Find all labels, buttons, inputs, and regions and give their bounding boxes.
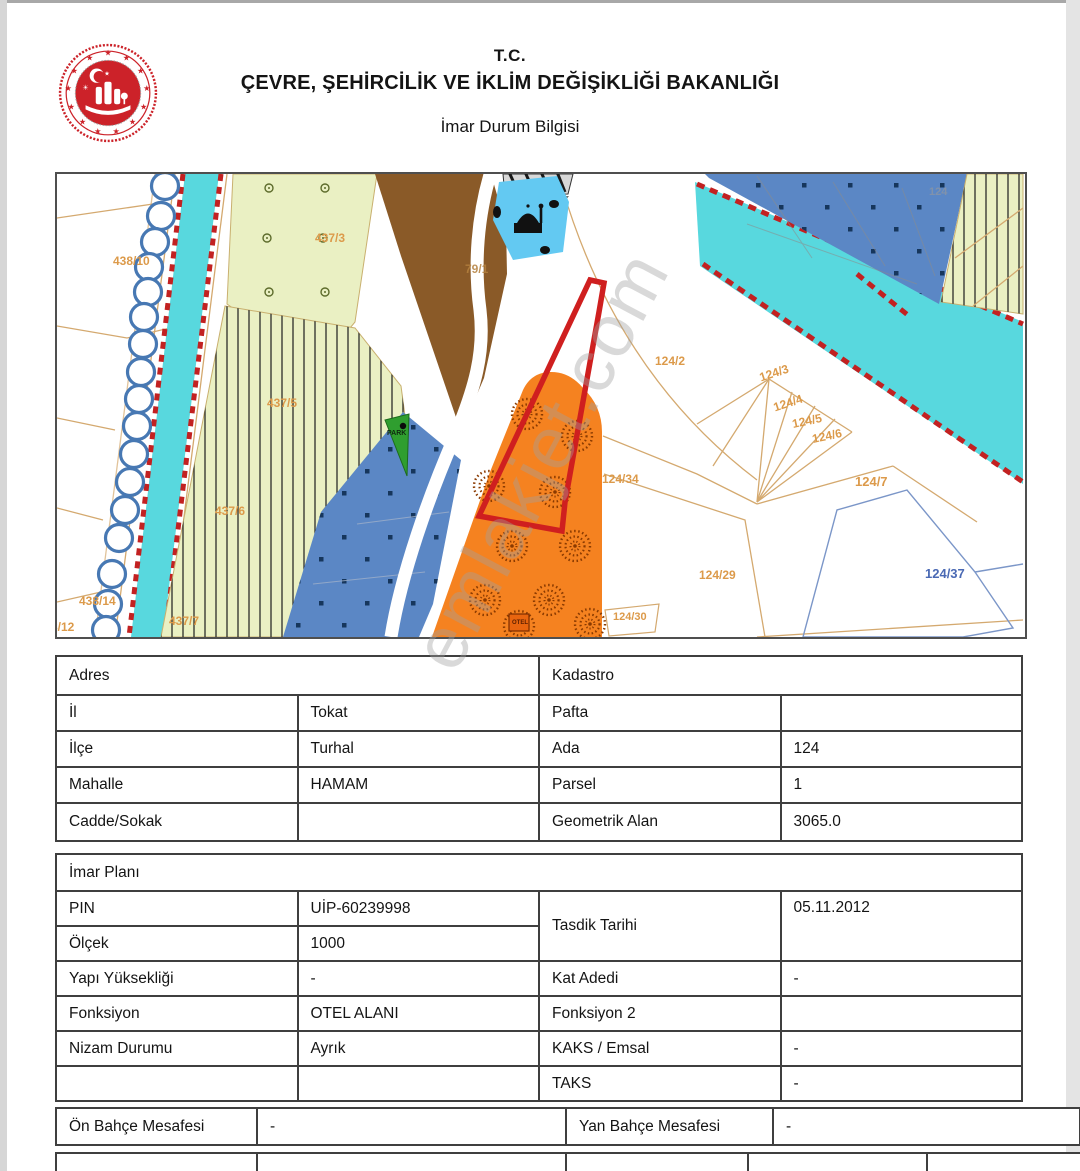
page-edge-right [1066,0,1080,1171]
olcek-value: 1000 [298,926,540,961]
empty-cell [566,1153,748,1171]
address-kadastro-table: Adres Kadastro İl Tokat Pafta İlçe Turha… [55,655,1023,842]
header-titles: T.C. ÇEVRE, ŞEHİRCİLİK VE İKLİM DEĞİŞİKL… [5,46,1015,137]
il-label: İl [56,695,298,731]
fonksiyon2-label: Fonksiyon 2 [539,996,781,1031]
taks-value: - [781,1066,1023,1101]
setback-table: Ön Bahçe Mesafesi - Yan Bahçe Mesafesi - [55,1107,1080,1146]
olcek-label: Ölçek [56,926,298,961]
table-row [56,1153,1080,1171]
yapi-yuksekligi-label: Yapı Yüksekliği [56,961,298,996]
fonksiyon-value: OTEL ALANI [298,996,540,1031]
empty-cell [298,1066,540,1101]
mahalle-label: Mahalle [56,767,298,803]
zoning-map: 438/10 437/3 79/1 437/5 437/6 437/7 438/… [55,172,1027,639]
adres-header: Adres [56,656,539,695]
table-row: PIN UİP-60239998 Tasdik Tarihi 05.11.201… [56,891,1022,926]
page-edge-top [0,0,1080,3]
geometrik-alan-label: Geometrik Alan [539,803,781,841]
pafta-label: Pafta [539,695,781,731]
table-row: İl Tokat Pafta [56,695,1022,731]
table-row: Yapı Yüksekliği - Kat Adedi - [56,961,1022,996]
taks-label: TAKS [539,1066,781,1101]
empty-cell [56,1066,298,1101]
table-row: İlçe Turhal Ada 124 [56,731,1022,767]
partial-bottom-table [55,1152,1080,1171]
ada-label: Ada [539,731,781,767]
imar-plani-header: İmar Planı [56,854,1022,891]
page-edge-left [0,0,7,1171]
on-bahce-value: - [257,1108,566,1145]
fonksiyon2-value [781,996,1023,1031]
imar-durum-document: ★★★ ★★★ ★★★ ★★★ ★ ★ ☀ T.C. ÇEVRE, ŞEHİRC… [0,0,1080,1171]
imar-plani-table: İmar Planı PIN UİP-60239998 Tasdik Tarih… [55,853,1023,1102]
nizam-durumu-label: Nizam Durumu [56,1031,298,1066]
empty-cell [56,1153,257,1171]
yan-bahce-label: Yan Bahçe Mesafesi [566,1108,773,1145]
kaks-emsal-label: KAKS / Emsal [539,1031,781,1066]
table-row: Cadde/Sokak Geometrik Alan 3065.0 [56,803,1022,841]
otel-building [509,614,529,631]
cadde-value [298,803,540,841]
pin-value: UİP-60239998 [298,891,540,926]
tasdik-tarihi-value: 05.11.2012 [781,891,1023,961]
kat-adedi-value: - [781,961,1023,996]
table-row: Mahalle HAMAM Parsel 1 [56,767,1022,803]
empty-cell [748,1153,927,1171]
table-row: Fonksiyon OTEL ALANI Fonksiyon 2 [56,996,1022,1031]
tasdik-tarihi-label: Tasdik Tarihi [539,891,781,961]
parsel-label: Parsel [539,767,781,803]
yan-bahce-value: - [773,1108,1080,1145]
label-plate-124-30 [605,604,659,636]
nizam-durumu-value: Ayrık [298,1031,540,1066]
pafta-value [781,695,1023,731]
table-row: TAKS - [56,1066,1022,1101]
kaks-emsal-value: - [781,1031,1023,1066]
empty-cell [257,1153,566,1171]
kadastro-header: Kadastro [539,656,1022,695]
on-bahce-label: Ön Bahçe Mesafesi [56,1108,257,1145]
table-row: Nizam Durumu Ayrık KAKS / Emsal - [56,1031,1022,1066]
cadde-label: Cadde/Sokak [56,803,298,841]
title-ministry: ÇEVRE, ŞEHİRCİLİK VE İKLİM DEĞİŞİKLİĞİ B… [5,72,1015,95]
table-row: Ön Bahçe Mesafesi - Yan Bahçe Mesafesi - [56,1108,1080,1145]
mahalle-value: HAMAM [298,767,540,803]
title-tc: T.C. [5,46,1015,66]
ilce-label: İlçe [56,731,298,767]
fonksiyon-label: Fonksiyon [56,996,298,1031]
parsel-value: 1 [781,767,1023,803]
ilce-value: Turhal [298,731,540,767]
pin-label: PIN [56,891,298,926]
il-value: Tokat [298,695,540,731]
ada-value: 124 [781,731,1023,767]
kat-adedi-label: Kat Adedi [539,961,781,996]
empty-cell [927,1153,1080,1171]
title-doc: İmar Durum Bilgisi [5,117,1015,137]
geometrik-alan-value: 3065.0 [781,803,1023,841]
yapi-yuksekligi-value: - [298,961,540,996]
